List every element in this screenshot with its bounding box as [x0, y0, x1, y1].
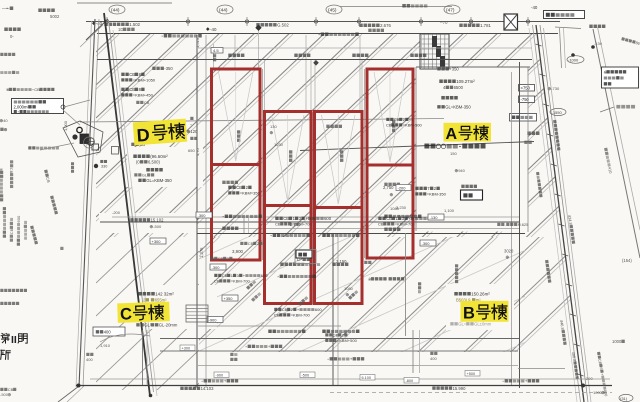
svg-text:--70: --70	[440, 20, 448, 25]
svg-text:400: 400	[430, 356, 437, 361]
svg-text:3,230: 3,230	[396, 205, 407, 210]
svg-text:-130: -130	[430, 215, 439, 220]
svg-text:6.100: 6.100	[362, 376, 372, 380]
svg-text:40: 40	[3, 118, 8, 123]
svg-text:=KBM-700: =KBM-700	[231, 279, 251, 284]
svg-text:CB: CB	[236, 185, 242, 190]
svg-text:=KBM+500: =KBM+500	[337, 338, 358, 343]
svg-text:GL/: GL/	[144, 323, 152, 328]
svg-text:=KBM+700: =KBM+700	[395, 222, 416, 227]
svg-text:+300: +300	[152, 239, 162, 244]
svg-text:GL: GL	[142, 173, 148, 178]
svg-text:+350: +350	[449, 67, 459, 72]
svg-text:1D: 1D	[118, 27, 123, 32]
svg-text:2.676: 2.676	[380, 23, 391, 28]
svg-text:-40: -40	[531, 5, 538, 10]
svg-text:600: 600	[261, 273, 268, 278]
svg-text:=KBM+450: =KBM+450	[133, 93, 154, 98]
svg-text:1,375: 1,375	[199, 247, 204, 258]
svg-text:6,500): 6,500)	[148, 160, 160, 165]
svg-text:15.990: 15.990	[453, 386, 466, 391]
svg-text:150: 150	[450, 151, 457, 156]
svg-text:CB: CB	[218, 256, 224, 261]
svg-text:1000: 1000	[593, 390, 603, 395]
svg-text:CB: CB	[222, 273, 228, 278]
svg-text:=KBM=350: =KBM=350	[240, 191, 261, 196]
svg-text:1.781: 1.781	[480, 23, 491, 28]
svg-text:CB: CB	[248, 241, 254, 246]
svg-text:(154): (154)	[622, 258, 632, 263]
svg-text:GL±0mm: GL±0mm	[474, 322, 492, 327]
svg-text:330: 330	[101, 165, 107, 169]
svg-text:-350: -350	[164, 66, 173, 71]
svg-text:G.502: G.502	[277, 23, 289, 28]
svg-text:15.102: 15.102	[151, 218, 164, 223]
svg-text:1,100: 1,100	[444, 208, 455, 213]
svg-text:=KBM+700: =KBM+700	[292, 222, 313, 227]
svg-text:-200: -200	[398, 185, 407, 190]
svg-text:1,910: 1,910	[100, 343, 111, 348]
svg-text:<750: <750	[521, 86, 531, 91]
svg-text:(44): (44)	[219, 8, 228, 14]
svg-text:CB: CB	[283, 216, 289, 221]
svg-text:+350: +350	[224, 296, 234, 301]
svg-text:-900: -900	[209, 317, 218, 322]
svg-text:C: C	[120, 305, 133, 323]
svg-text:130: 130	[270, 124, 277, 129]
svg-text:CB: CB	[386, 123, 392, 128]
svg-text:CB: CB	[378, 222, 384, 227]
svg-text:CB: CB	[282, 307, 288, 312]
svg-text:-300: -300	[422, 241, 431, 246]
svg-text:(47): (47)	[446, 8, 455, 14]
svg-text:290: 290	[586, 376, 593, 381]
svg-text:-500: -500	[153, 224, 162, 229]
svg-text:6500: 6500	[454, 85, 464, 90]
svg-text:1080: 1080	[344, 286, 354, 291]
svg-text:CB: CB	[129, 87, 135, 92]
svg-text:-800: -800	[406, 379, 414, 383]
svg-text:3020: 3020	[504, 249, 514, 254]
svg-text:=KBM-700: =KBM-700	[291, 313, 311, 318]
svg-text:142 32m²: 142 32m²	[155, 292, 174, 297]
svg-text:CB: CB	[8, 387, 14, 392]
svg-text:CB: CB	[34, 87, 40, 92]
svg-text:-40: -40	[210, 27, 217, 32]
svg-text:600: 600	[16, 215, 21, 222]
svg-text:CB: CB	[275, 222, 281, 227]
svg-text:N.625: N.625	[518, 222, 529, 227]
svg-text:-730: -730	[551, 86, 560, 91]
svg-text:-500: -500	[401, 214, 410, 219]
svg-text:940: 940	[458, 168, 465, 173]
svg-text:GL-20mm: GL-20mm	[159, 323, 178, 328]
svg-text:2,750: 2,750	[383, 185, 394, 190]
svg-text:.: .	[505, 222, 506, 227]
svg-text:2,150: 2,150	[336, 259, 347, 264]
svg-text:109.27m²: 109.27m²	[456, 79, 475, 84]
svg-text:(45): (45)	[328, 8, 337, 14]
svg-text:(44): (44)	[111, 8, 120, 14]
svg-text:A: A	[446, 126, 458, 143]
svg-text:GL=KBM-350: GL=KBM-350	[146, 178, 172, 183]
svg-text:-500: -500	[0, 392, 9, 397]
svg-text:(96.60m²: (96.60m²	[150, 154, 168, 159]
svg-text:4.5: 4.5	[213, 48, 219, 53]
svg-text:-1000: -1000	[568, 58, 579, 63]
svg-text:CB: CB	[274, 313, 280, 318]
svg-text:+300: +300	[182, 346, 191, 350]
svg-text:CB: CB	[144, 100, 150, 105]
svg-text:120: 120	[190, 129, 198, 134]
svg-text:-200: -200	[112, 210, 121, 215]
svg-text:-1550: -1550	[552, 110, 563, 115]
svg-text:B: B	[463, 304, 475, 322]
svg-text:-300: -300	[212, 265, 221, 270]
svg-text:CB: CB	[333, 333, 339, 338]
svg-text:-300: -300	[198, 213, 207, 218]
svg-text:1.502: 1.502	[129, 22, 140, 27]
svg-text:CB: CB	[129, 72, 135, 77]
svg-text:150.26m²: 150.26m²	[471, 292, 490, 297]
svg-text:4,70: 4,70	[195, 147, 200, 156]
svg-text:D: D	[136, 125, 150, 146]
svg-text:-500: -500	[302, 373, 310, 377]
svg-text:400: 400	[104, 330, 112, 335]
svg-text:LP: LP	[297, 257, 302, 262]
svg-text:=KBM+1050: =KBM+1050	[133, 78, 156, 83]
svg-text:CB: CB	[214, 279, 220, 284]
svg-text:1,513: 1,513	[195, 37, 200, 48]
svg-text:CB: CB	[386, 216, 392, 221]
svg-text:3,900: 3,900	[232, 249, 244, 254]
svg-text:1000: 1000	[612, 339, 622, 344]
svg-text:=KBM-350: =KBM-350	[427, 192, 447, 197]
svg-text:600: 600	[324, 216, 332, 221]
svg-text:(31): (31)	[620, 396, 628, 401]
svg-text:1030: 1030	[274, 142, 284, 147]
svg-text:CB: CB	[394, 117, 400, 122]
svg-text:—•-: —•-	[2, 6, 10, 11]
svg-text:-900: -900	[216, 373, 224, 377]
svg-text:II: II	[11, 334, 17, 346]
svg-text:2,000m²: 2,000m²	[14, 105, 30, 110]
svg-text:0-: 0-	[10, 34, 14, 39]
svg-text:+500: +500	[467, 372, 476, 376]
svg-text:5002: 5002	[50, 14, 60, 19]
svg-text:600: 600	[315, 307, 322, 312]
svg-text:=KBM-500: =KBM-500	[403, 123, 423, 128]
svg-text:CB: CB	[9, 228, 14, 234]
svg-text:400: 400	[86, 357, 93, 362]
svg-text:GL=KBM-350: GL=KBM-350	[445, 105, 471, 110]
svg-text:CB: CB	[9, 168, 14, 174]
svg-text:14.103: 14.103	[201, 386, 214, 391]
